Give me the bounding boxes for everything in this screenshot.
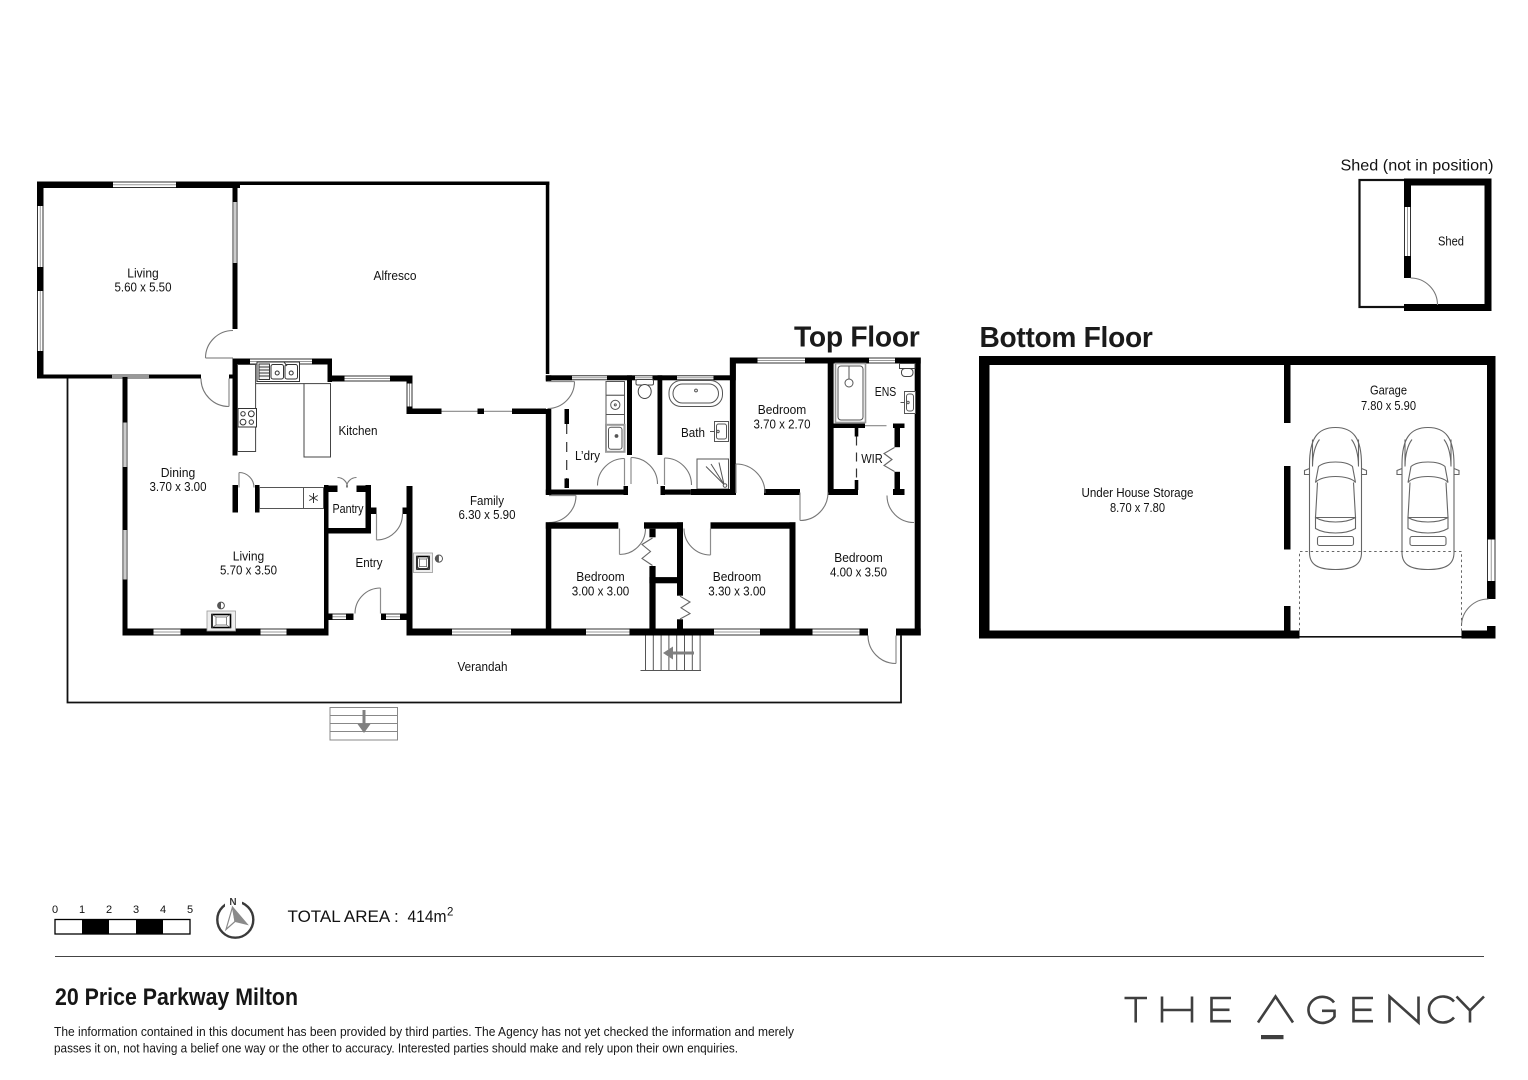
svg-text:Kitchen: Kitchen	[339, 423, 378, 438]
svg-text:Bottom Floor: Bottom Floor	[980, 322, 1153, 354]
svg-text:3.70 x 2.70: 3.70 x 2.70	[754, 417, 811, 432]
svg-text:Alfresco: Alfresco	[374, 268, 417, 283]
svg-text:Bedroom: Bedroom	[576, 569, 625, 584]
svg-text:Bedroom: Bedroom	[834, 550, 883, 565]
svg-text:5.60 x 5.50: 5.60 x 5.50	[115, 280, 172, 295]
svg-text:L’dry: L’dry	[575, 448, 600, 463]
svg-text:3.70 x 3.00: 3.70 x 3.00	[150, 479, 207, 494]
svg-text:7.80 x 5.90: 7.80 x 5.90	[1361, 398, 1416, 413]
svg-text:6.30 x 5.90: 6.30 x 5.90	[459, 507, 516, 522]
svg-text:passes it on, not having a bel: passes it on, not having a belief one wa…	[54, 1041, 738, 1056]
svg-text:1: 1	[79, 904, 85, 916]
svg-text:Bath: Bath	[681, 425, 705, 440]
svg-text:Bedroom: Bedroom	[713, 569, 762, 584]
svg-text:WIR: WIR	[861, 451, 883, 466]
svg-text:The information contained in t: The information contained in this docume…	[54, 1024, 794, 1039]
svg-text:3.00 x 3.00: 3.00 x 3.00	[572, 584, 630, 599]
svg-text:Top Floor: Top Floor	[794, 322, 920, 354]
svg-text:414m: 414m	[408, 907, 447, 926]
svg-text:2: 2	[447, 907, 453, 919]
svg-text:Shed (not in position): Shed (not in position)	[1341, 158, 1494, 175]
svg-text:Verandah: Verandah	[458, 659, 508, 674]
svg-text:5: 5	[187, 904, 193, 916]
svg-text:0: 0	[52, 904, 58, 916]
svg-text:4.00 x 3.50: 4.00 x 3.50	[830, 565, 887, 580]
svg-text:5.70 x 3.50: 5.70 x 3.50	[220, 563, 277, 578]
svg-text:Pantry: Pantry	[333, 502, 365, 516]
svg-text:Living: Living	[127, 266, 159, 281]
svg-text:N: N	[229, 897, 236, 908]
svg-text:Garage: Garage	[1370, 383, 1407, 398]
svg-text:Entry: Entry	[356, 555, 383, 570]
svg-text:8.70 x 7.80: 8.70 x 7.80	[1110, 500, 1165, 515]
svg-text:3.30 x 3.00: 3.30 x 3.00	[708, 584, 766, 599]
svg-text:20 Price Parkway Milton: 20 Price Parkway Milton	[55, 984, 298, 1011]
svg-text:TOTAL AREA: TOTAL AREA	[288, 907, 391, 926]
svg-text:Living: Living	[233, 549, 265, 564]
svg-text:Bedroom: Bedroom	[758, 402, 807, 417]
svg-text:3: 3	[133, 904, 139, 916]
svg-text:2: 2	[106, 904, 112, 916]
svg-text:Dining: Dining	[161, 465, 196, 480]
svg-text:ENS: ENS	[875, 384, 897, 399]
svg-text:Shed: Shed	[1438, 234, 1464, 249]
svg-text::: :	[394, 907, 399, 926]
svg-text:Under House Storage: Under House Storage	[1082, 485, 1194, 500]
svg-text:4: 4	[160, 904, 166, 916]
svg-text:Family: Family	[470, 493, 504, 508]
